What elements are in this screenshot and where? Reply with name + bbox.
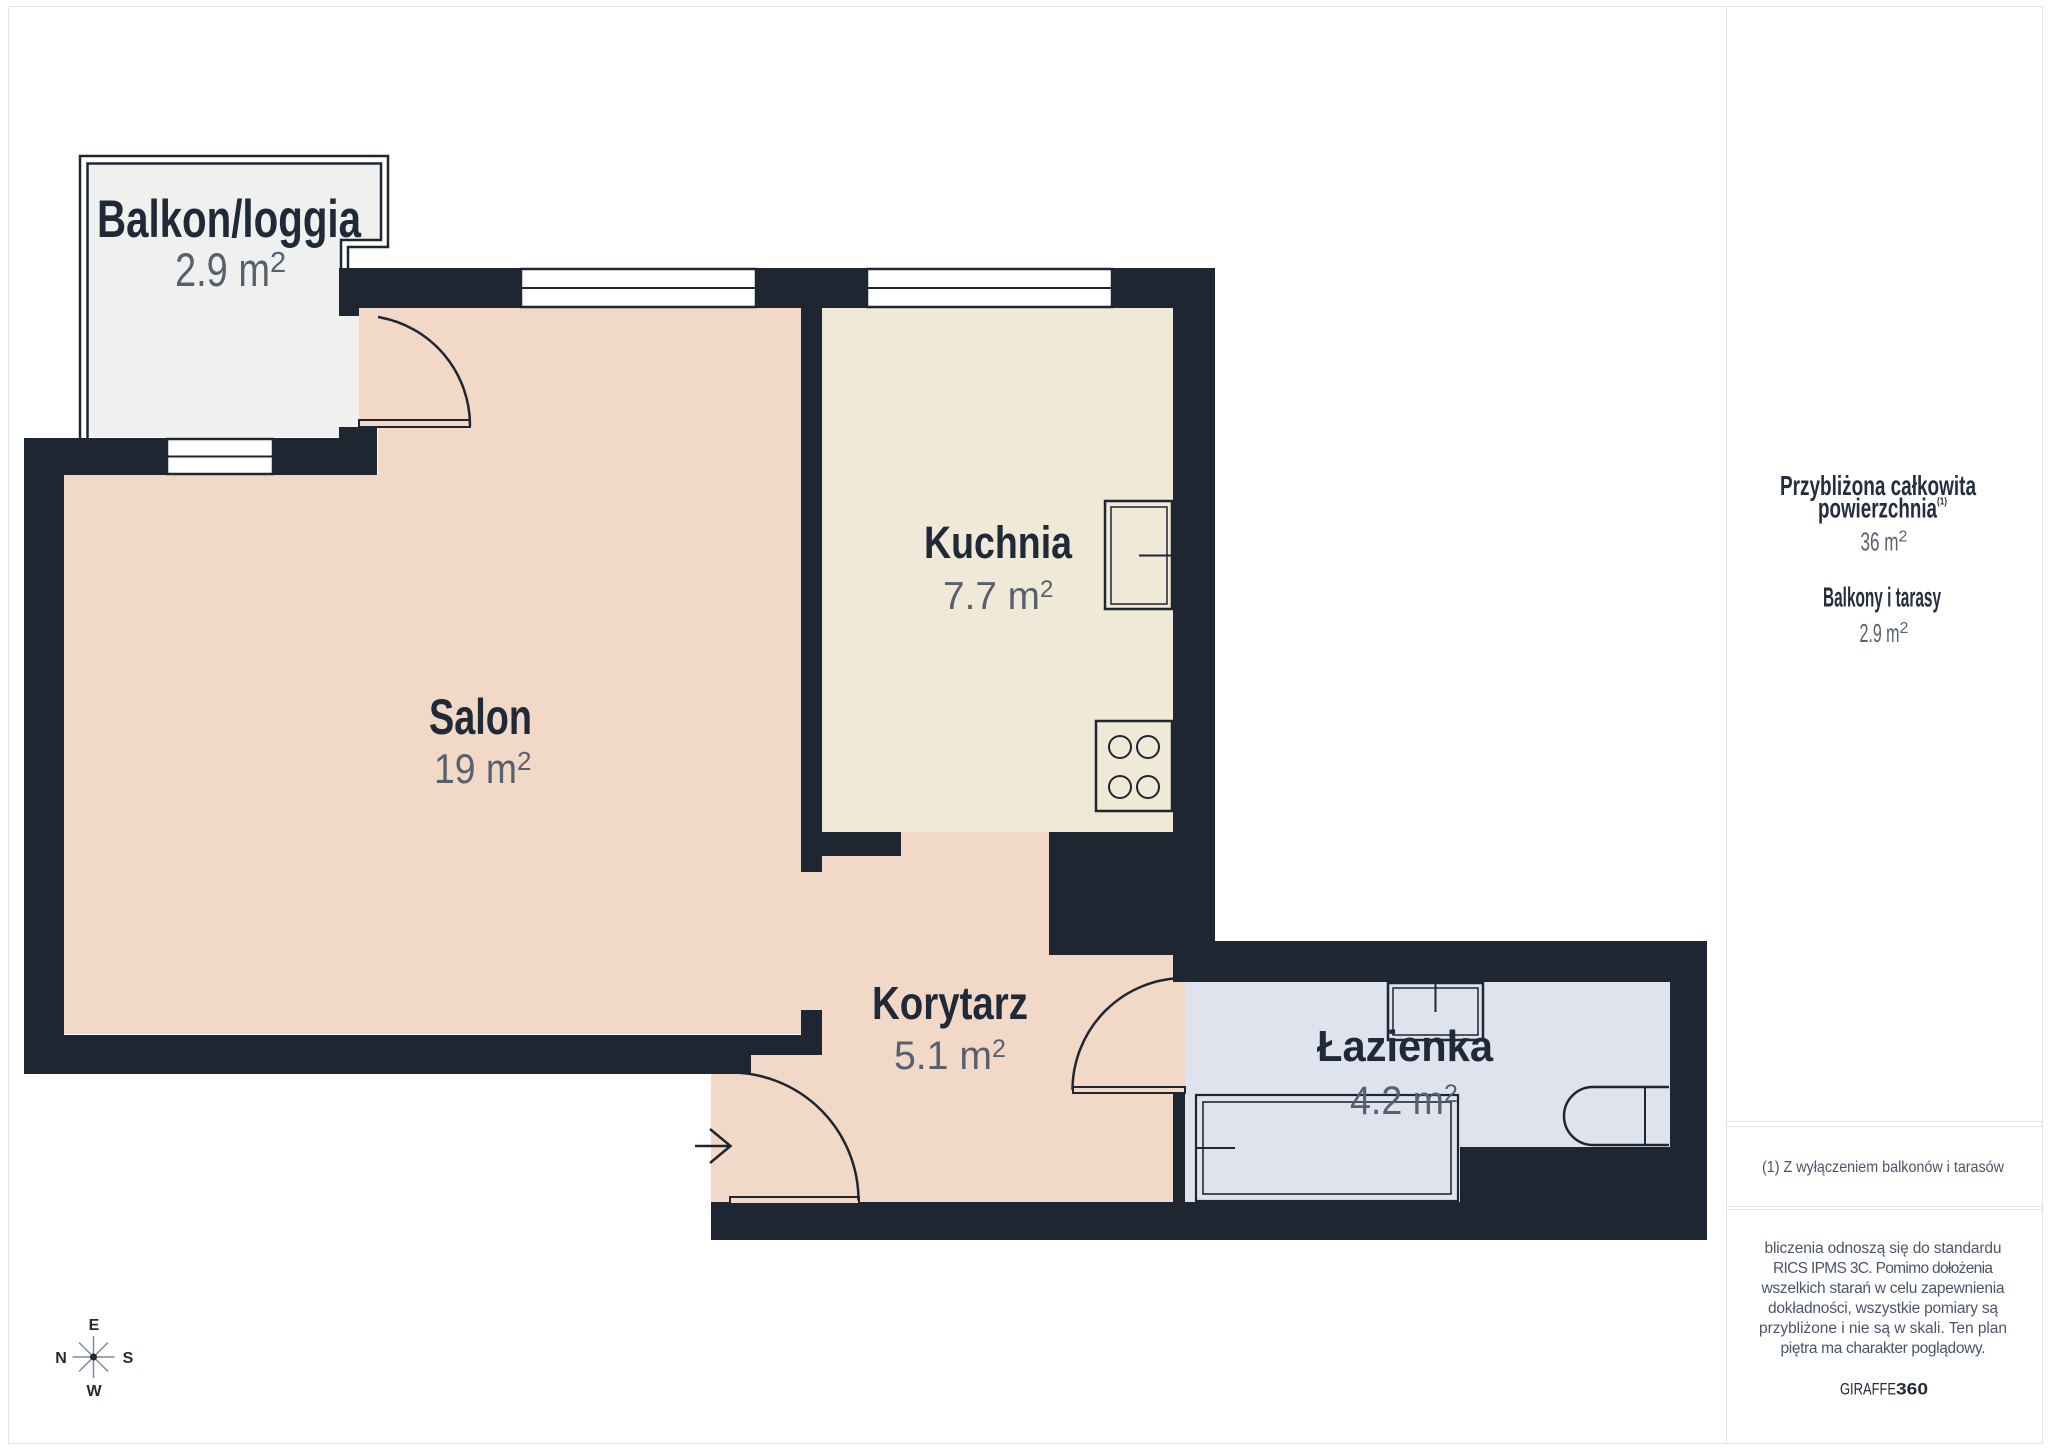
svg-text:Balkon/loggia: Balkon/loggia bbox=[97, 190, 361, 249]
svg-text:wszelkich starań w celu zapewn: wszelkich starań w celu zapewnienia bbox=[1761, 1280, 2005, 1297]
svg-text:GIRAFFE360: GIRAFFE360 bbox=[1840, 1381, 1928, 1399]
svg-text:N: N bbox=[55, 1350, 67, 1367]
svg-text:RICS IPMS 3C. Pomimo dołożenia: RICS IPMS 3C. Pomimo dołożenia bbox=[1773, 1260, 1993, 1277]
svg-text:E: E bbox=[89, 1317, 100, 1334]
svg-text:S: S bbox=[123, 1350, 134, 1367]
svg-text:7.7 m2: 7.7 m2 bbox=[943, 575, 1053, 618]
svg-text:Korytarz: Korytarz bbox=[872, 977, 1028, 1029]
svg-text:19 m2: 19 m2 bbox=[434, 745, 531, 792]
svg-text:2.9 m2: 2.9 m2 bbox=[175, 243, 286, 296]
svg-text:przybliżone i nie są w skali.: przybliżone i nie są w skali. Ten plan bbox=[1759, 1320, 2007, 1337]
svg-text:powierzchnia(1): powierzchnia(1) bbox=[1818, 493, 1947, 524]
svg-text:Salon: Salon bbox=[429, 689, 532, 745]
svg-text:piętra ma charakter poglądowy.: piętra ma charakter poglądowy. bbox=[1781, 1340, 1986, 1357]
svg-text:Kuchnia: Kuchnia bbox=[924, 517, 1073, 568]
svg-text:5.1 m2: 5.1 m2 bbox=[894, 1034, 1006, 1078]
svg-text:Balkony i tarasy: Balkony i tarasy bbox=[1823, 582, 1941, 613]
svg-text:Łazienka: Łazienka bbox=[1317, 1022, 1493, 1071]
svg-text:W: W bbox=[86, 1383, 102, 1400]
svg-text:4.2 m2: 4.2 m2 bbox=[1350, 1079, 1458, 1123]
svg-text:dokładności, wszystkie pomiary: dokładności, wszystkie pomiary są bbox=[1768, 1300, 1998, 1317]
svg-text:bliczenia odnoszą się do stand: bliczenia odnoszą się do standardu bbox=[1765, 1240, 2002, 1257]
svg-text:(1) Z wyłączeniem balkonów i t: (1) Z wyłączeniem balkonów i tarasów bbox=[1762, 1159, 2004, 1176]
